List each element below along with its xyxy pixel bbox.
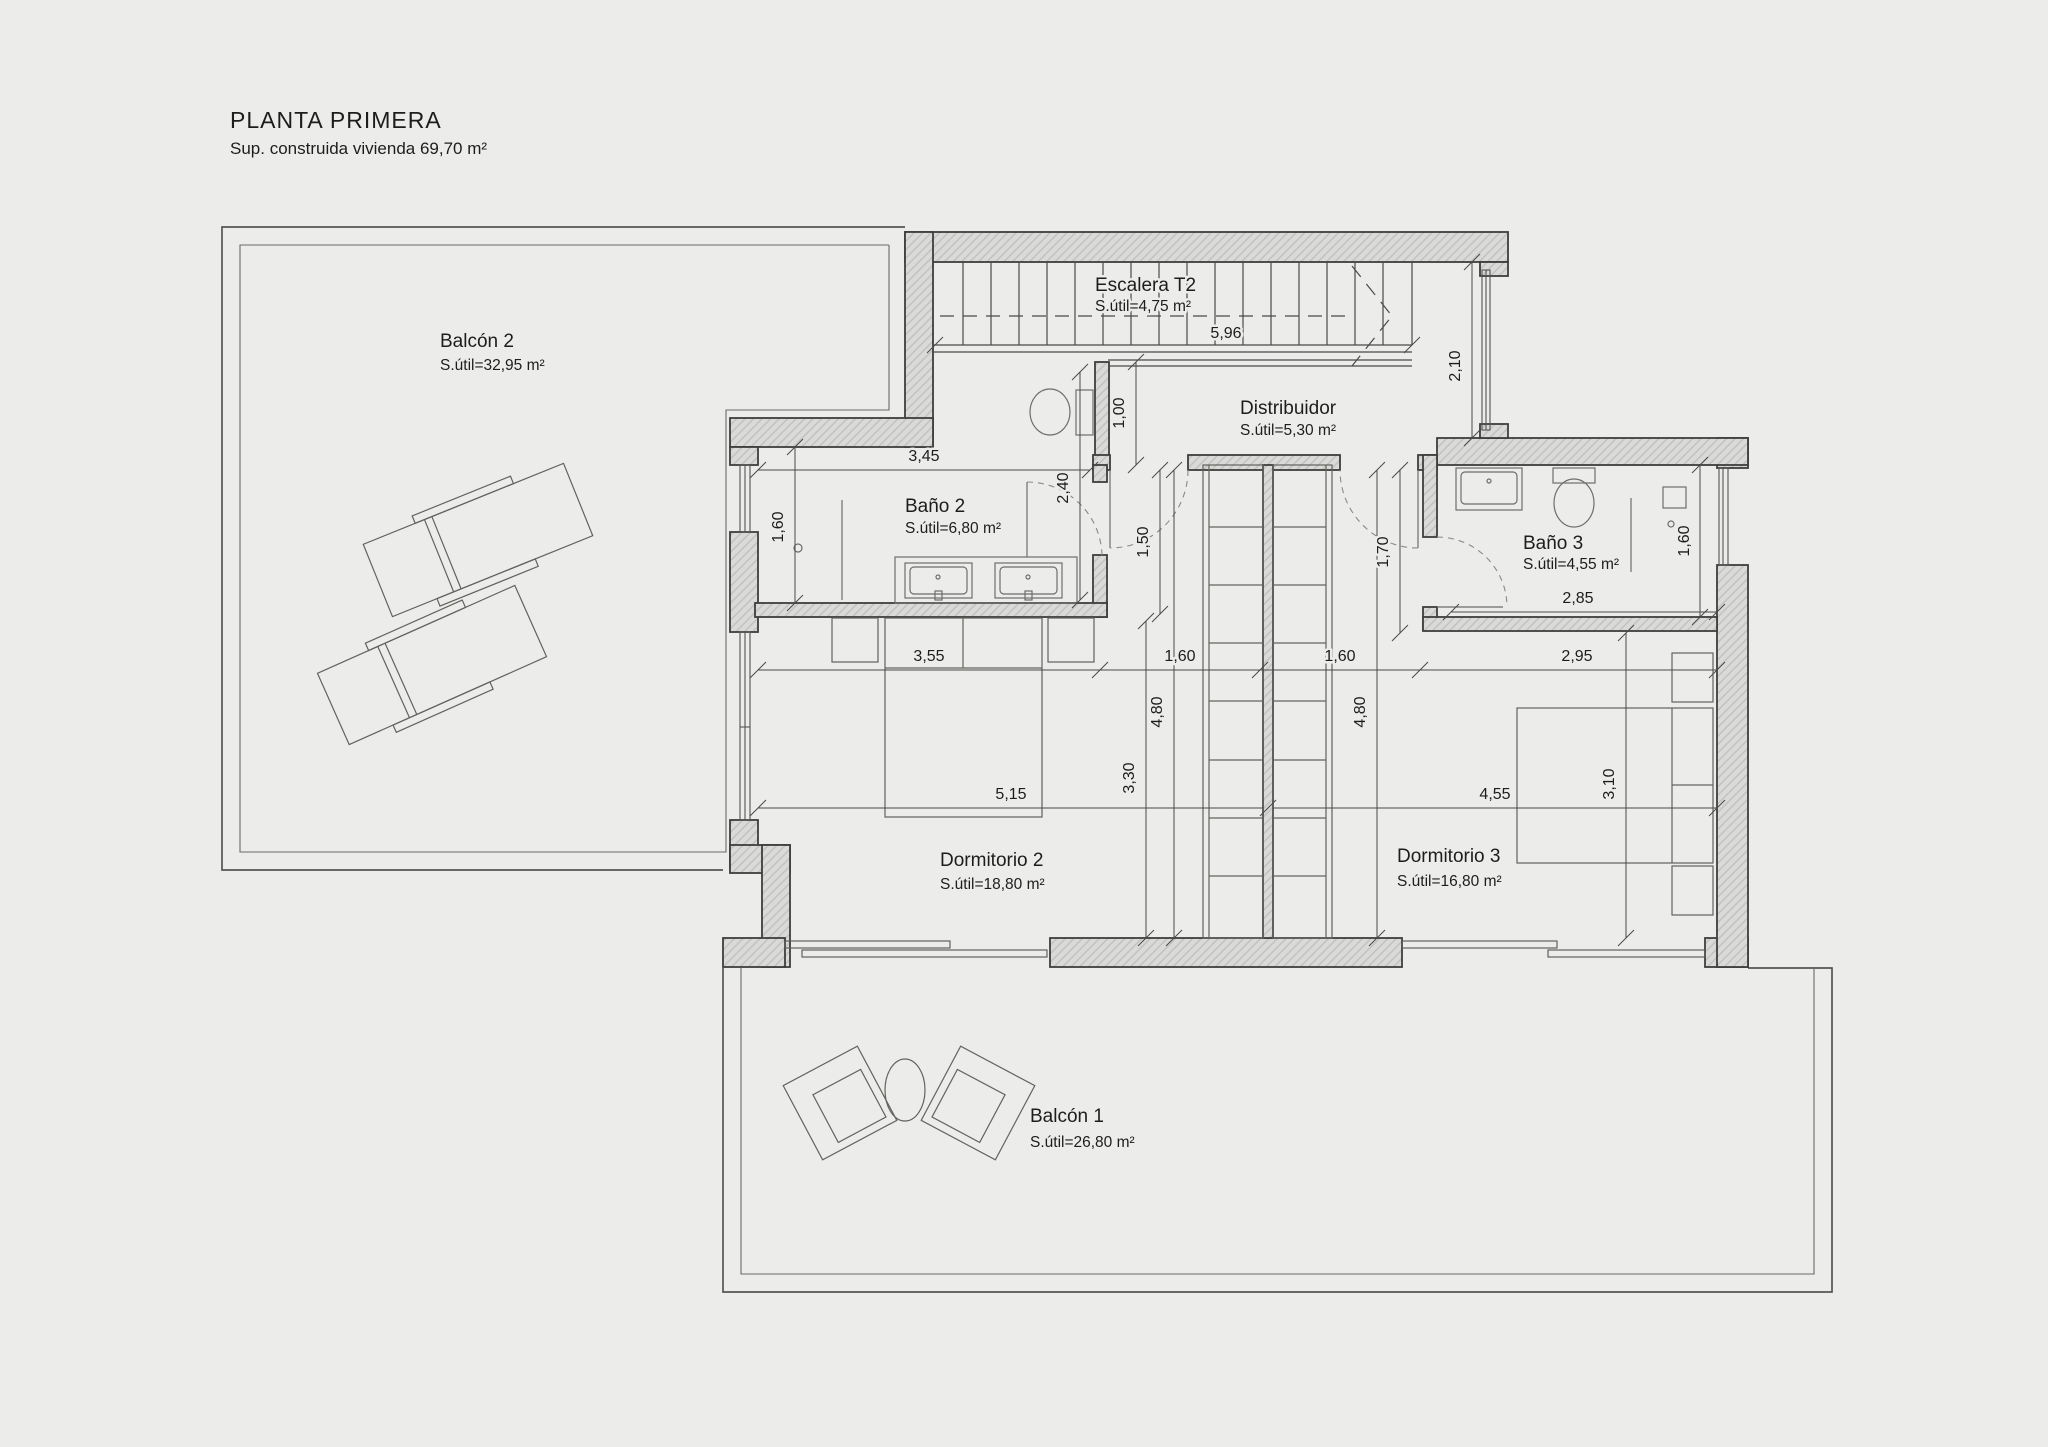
plan-subtitle: Sup. construida vivienda 69,70 m² (230, 139, 487, 158)
plan-title: PLANTA PRIMERA (230, 107, 442, 133)
stair-escalera: Escalera T2 S.útil=4,75 m² (933, 262, 1412, 366)
wardrobe-dorm3 (1273, 465, 1332, 938)
armchair (921, 1046, 1035, 1160)
nightstand (1048, 618, 1094, 662)
dim-dorm2-depth: 4,80 (1149, 696, 1166, 727)
stair-lower-edge (933, 345, 1412, 366)
wall-ne-stub-bottom (1480, 424, 1508, 438)
dim-bano2-nook: 2,40 (1055, 472, 1072, 503)
balcon1-terrace: Balcón 1 S.útil=26,80 m² (723, 968, 1832, 1292)
dim-dorm3-entry: 1,70 (1375, 536, 1392, 567)
sun-lounger (360, 456, 595, 624)
window-dorm2-west (740, 632, 750, 820)
dim-bano2-depth: 1,60 (770, 511, 787, 542)
dim-wardrobe-left: 1,60 (1164, 648, 1195, 665)
wall-bottom-b (1050, 938, 1402, 967)
dim-dorm3-depth: 4,80 (1352, 696, 1369, 727)
toilet (1030, 389, 1093, 435)
sink (995, 563, 1062, 600)
bano3-label: Baño 3 (1523, 533, 1583, 554)
balcon2-inner-rail (240, 245, 889, 852)
dim-bano3-depth: 1,60 (1676, 525, 1693, 556)
door-dormitorio3 (1340, 470, 1418, 548)
wall-nook-east (1095, 362, 1109, 465)
dim-hall-door: 1,50 (1135, 526, 1152, 557)
dim-dorm2-inner-depth: 3,30 (1121, 762, 1138, 793)
armchair (783, 1046, 897, 1160)
window-bano3-east (1719, 468, 1728, 565)
dormitorio3-area: S.útil=16,80 m² (1397, 873, 1502, 890)
dim-bano3-width: 2,85 (1562, 590, 1593, 607)
wall-top (905, 232, 1508, 262)
balcon1-label: Balcón 1 (1030, 1106, 1104, 1127)
escalera-label: Escalera T2 (1095, 275, 1196, 296)
wall-closet-center (1263, 465, 1273, 938)
vanity-counter (895, 557, 1077, 603)
wall-bano2-north (730, 418, 933, 447)
sun-lounger (314, 578, 550, 752)
side-table (885, 1059, 925, 1121)
dim-stair-length: 5,96 (1210, 325, 1241, 342)
dormitorio3-label: Dormitorio 3 (1397, 846, 1500, 867)
wall-west-a (730, 447, 758, 465)
sink (905, 563, 972, 600)
sink (1456, 468, 1522, 510)
toilet (1553, 468, 1595, 527)
wall-bano3-north (1437, 438, 1748, 465)
wall-east-main (1717, 565, 1748, 967)
nightstand (832, 618, 878, 662)
nightstand (1672, 653, 1713, 702)
wall-bano2-east-a (1093, 465, 1107, 482)
title-block: PLANTA PRIMERA Sup. construida vivienda … (230, 107, 487, 158)
dormitorio2-area: S.útil=18,80 m² (940, 876, 1045, 893)
escalera-area: S.útil=4,75 m² (1095, 298, 1191, 315)
wall-bano3-south (1423, 617, 1717, 631)
shower-area (794, 500, 842, 600)
dim-dorm2-length: 5,15 (995, 786, 1026, 803)
dormitorio2-label: Dormitorio 2 (940, 850, 1043, 871)
balcon2-label: Balcón 2 (440, 331, 514, 352)
dimensions: 5,96 3,45 2,85 3,55 1,60 1,60 2,95 5,15 … (750, 254, 1725, 946)
wall-stair-west (905, 232, 933, 447)
distribuidor-area: S.útil=5,30 m² (1240, 422, 1336, 439)
bano2-area: S.útil=6,80 m² (905, 520, 1001, 537)
wall-bottom-a (723, 938, 785, 967)
wall-bano2-south (755, 603, 1107, 617)
floor-plan-drawing: PLANTA PRIMERA Sup. construida vivienda … (0, 0, 2048, 1447)
wall-bano3-west-a (1423, 455, 1437, 537)
dim-hall-neck: 1,00 (1111, 397, 1128, 428)
dim-dorm3-length: 4,55 (1479, 786, 1510, 803)
wardrobe-dorm2 (1203, 465, 1263, 938)
dim-right-corridor: 2,10 (1447, 350, 1464, 381)
balcon1-area: S.útil=26,80 m² (1030, 1134, 1135, 1151)
sliding-door-dorm3 (1402, 941, 1705, 957)
door-bano3 (1437, 537, 1507, 607)
floor-plan-page: PLANTA PRIMERA Sup. construida vivienda … (0, 0, 2048, 1447)
wall-west-b (730, 532, 758, 632)
nightstand (1672, 866, 1713, 915)
sliding-door-dorm2 (785, 941, 1047, 957)
dim-wardrobe-right: 1,60 (1324, 648, 1355, 665)
distribuidor-label: Distribuidor (1240, 398, 1337, 419)
stair-direction-arrow (1352, 266, 1392, 366)
dim-dorm3-width: 2,95 (1561, 648, 1592, 665)
balcon1-outer-rail (723, 968, 1832, 1292)
dim-bano2-width: 3,45 (908, 448, 939, 465)
balcon2-area: S.útil=32,95 m² (440, 357, 545, 374)
bano3-area: S.útil=4,55 m² (1523, 556, 1619, 573)
wall-ne-stub-top (1480, 262, 1508, 276)
bano2-label: Baño 2 (905, 496, 965, 517)
window-bano2-west (740, 465, 750, 532)
window-corridor-east (1482, 270, 1490, 430)
walls (723, 232, 1748, 967)
dim-dorm3-inner-depth: 3,10 (1601, 768, 1618, 799)
dorm2-furniture (832, 618, 1094, 817)
dim-dorm2-width: 3,55 (913, 648, 944, 665)
